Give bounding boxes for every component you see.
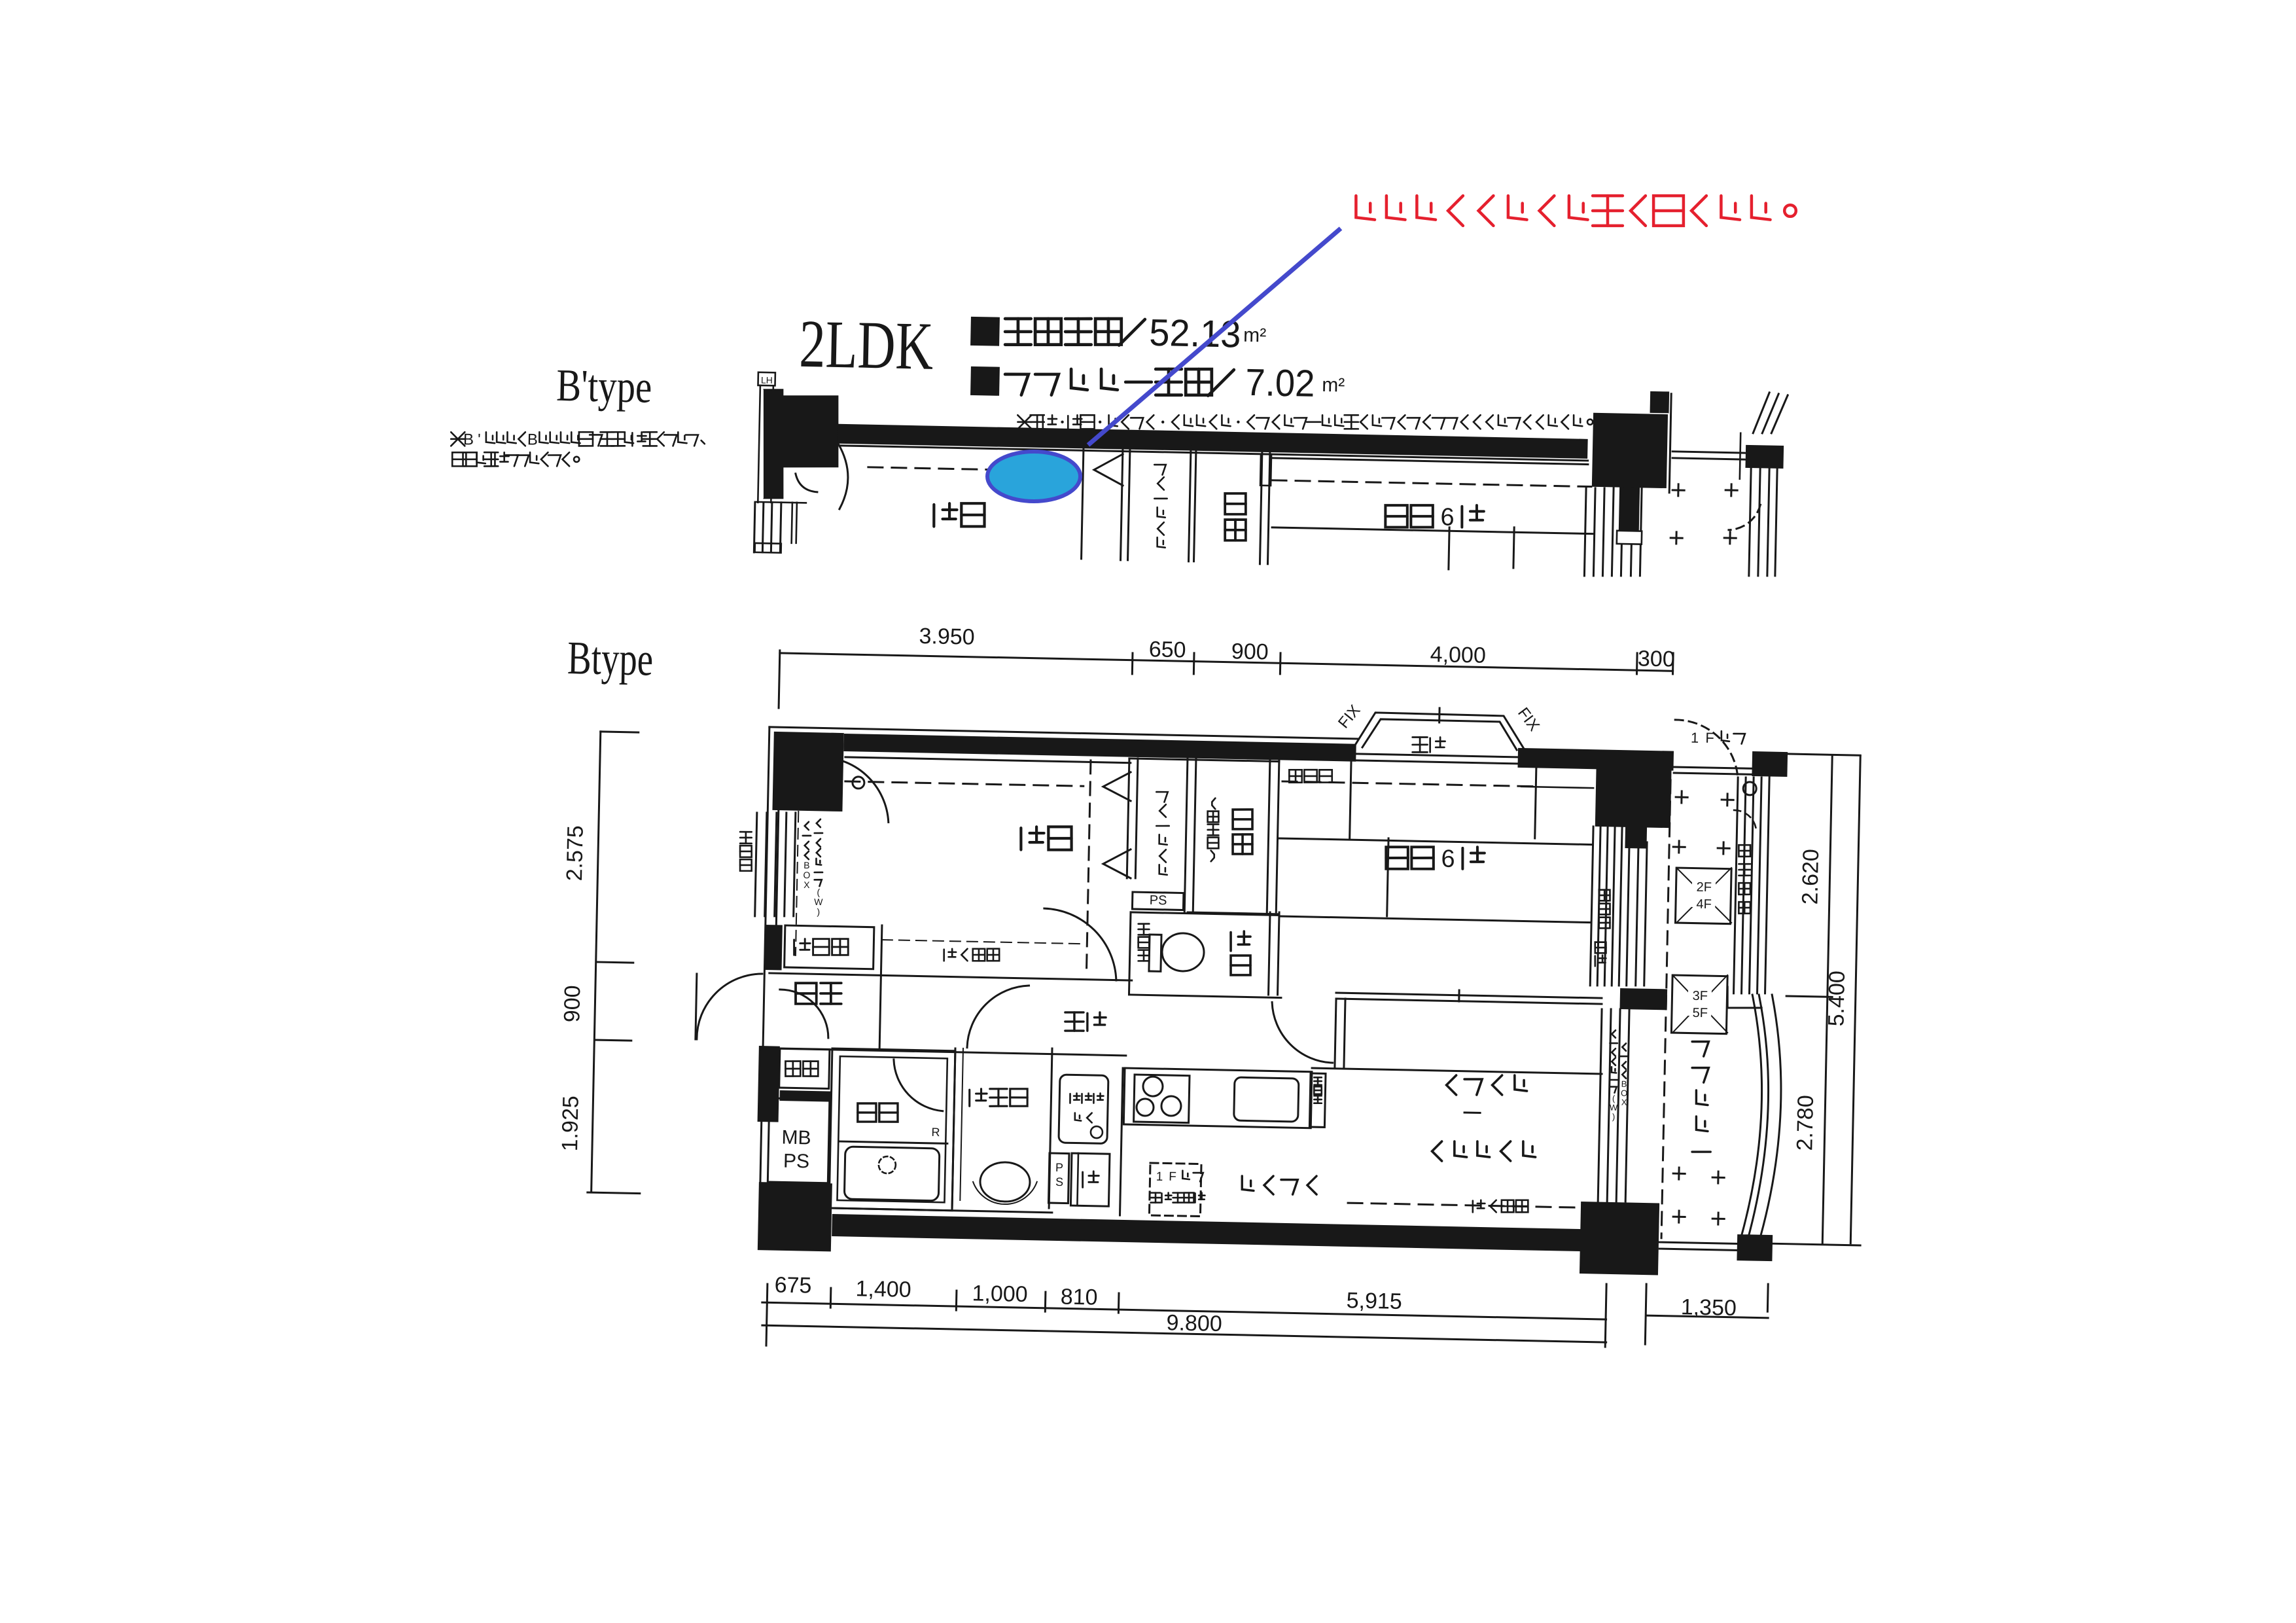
svg-text:W: W [1610,1103,1618,1113]
svg-text:6: 6 [1441,845,1455,872]
svg-text:LH: LH [761,375,773,385]
svg-text:5,915: 5,915 [1346,1288,1402,1314]
svg-text:1,000: 1,000 [972,1281,1028,1307]
svg-text:1,400: 1,400 [855,1276,911,1302]
svg-text:5F: 5F [1692,1006,1708,1020]
svg-text:(: ( [817,887,820,897]
svg-text:': ' [478,431,481,448]
svg-text:O: O [803,870,810,880]
svg-text:PS: PS [783,1150,810,1173]
svg-text:m²: m² [1243,325,1267,347]
svg-text:3F: 3F [1692,989,1708,1003]
svg-text:O: O [1621,1088,1627,1098]
svg-text:4F: 4F [1696,897,1712,912]
svg-text:B: B [1621,1079,1627,1089]
svg-text:S: S [1055,1175,1063,1188]
svg-text:R: R [931,1126,940,1139]
svg-text:B'type: B'type [556,361,653,413]
svg-text:5.400: 5.400 [1824,971,1850,1027]
svg-text:300: 300 [1638,646,1675,671]
svg-text:F: F [1169,1170,1176,1184]
svg-text:52.13: 52.13 [1149,312,1241,356]
svg-text:2.780: 2.780 [1792,1095,1818,1151]
svg-text:): ) [817,906,820,917]
svg-text:PS: PS [1150,893,1167,908]
svg-text:9.800: 9.800 [1166,1310,1222,1336]
svg-text:X: X [1621,1097,1627,1107]
svg-text:W: W [814,897,823,907]
svg-text:650: 650 [1148,637,1186,662]
svg-text:810: 810 [1060,1284,1097,1310]
svg-text:B: B [463,431,474,448]
svg-text:1: 1 [1691,730,1699,746]
svg-text:4,000: 4,000 [1430,642,1486,668]
svg-text:2F: 2F [1696,880,1712,895]
svg-text:1.925: 1.925 [557,1096,584,1152]
svg-text:900: 900 [1231,639,1269,664]
svg-text:2.575: 2.575 [562,825,588,882]
svg-text:675: 675 [774,1273,811,1298]
svg-text:6: 6 [1440,503,1455,531]
svg-text:MB: MB [781,1127,811,1149]
svg-text:2.620: 2.620 [1797,849,1824,905]
svg-text:B: B [527,431,539,448]
svg-text:Btype: Btype [567,632,654,686]
svg-text:P: P [1055,1161,1063,1174]
svg-text:1: 1 [1156,1170,1163,1184]
svg-text:7.02: 7.02 [1245,361,1315,405]
svg-text:F: F [1705,730,1714,746]
svg-text:900: 900 [559,985,585,1022]
svg-text:1,350: 1,350 [1680,1294,1737,1321]
svg-text:X: X [804,880,810,890]
svg-text:B: B [804,860,810,870]
svg-text:m²: m² [1322,374,1345,397]
svg-text:2LDK: 2LDK [798,306,934,384]
svg-text:3.950: 3.950 [919,624,975,650]
svg-text:): ) [1612,1112,1616,1122]
